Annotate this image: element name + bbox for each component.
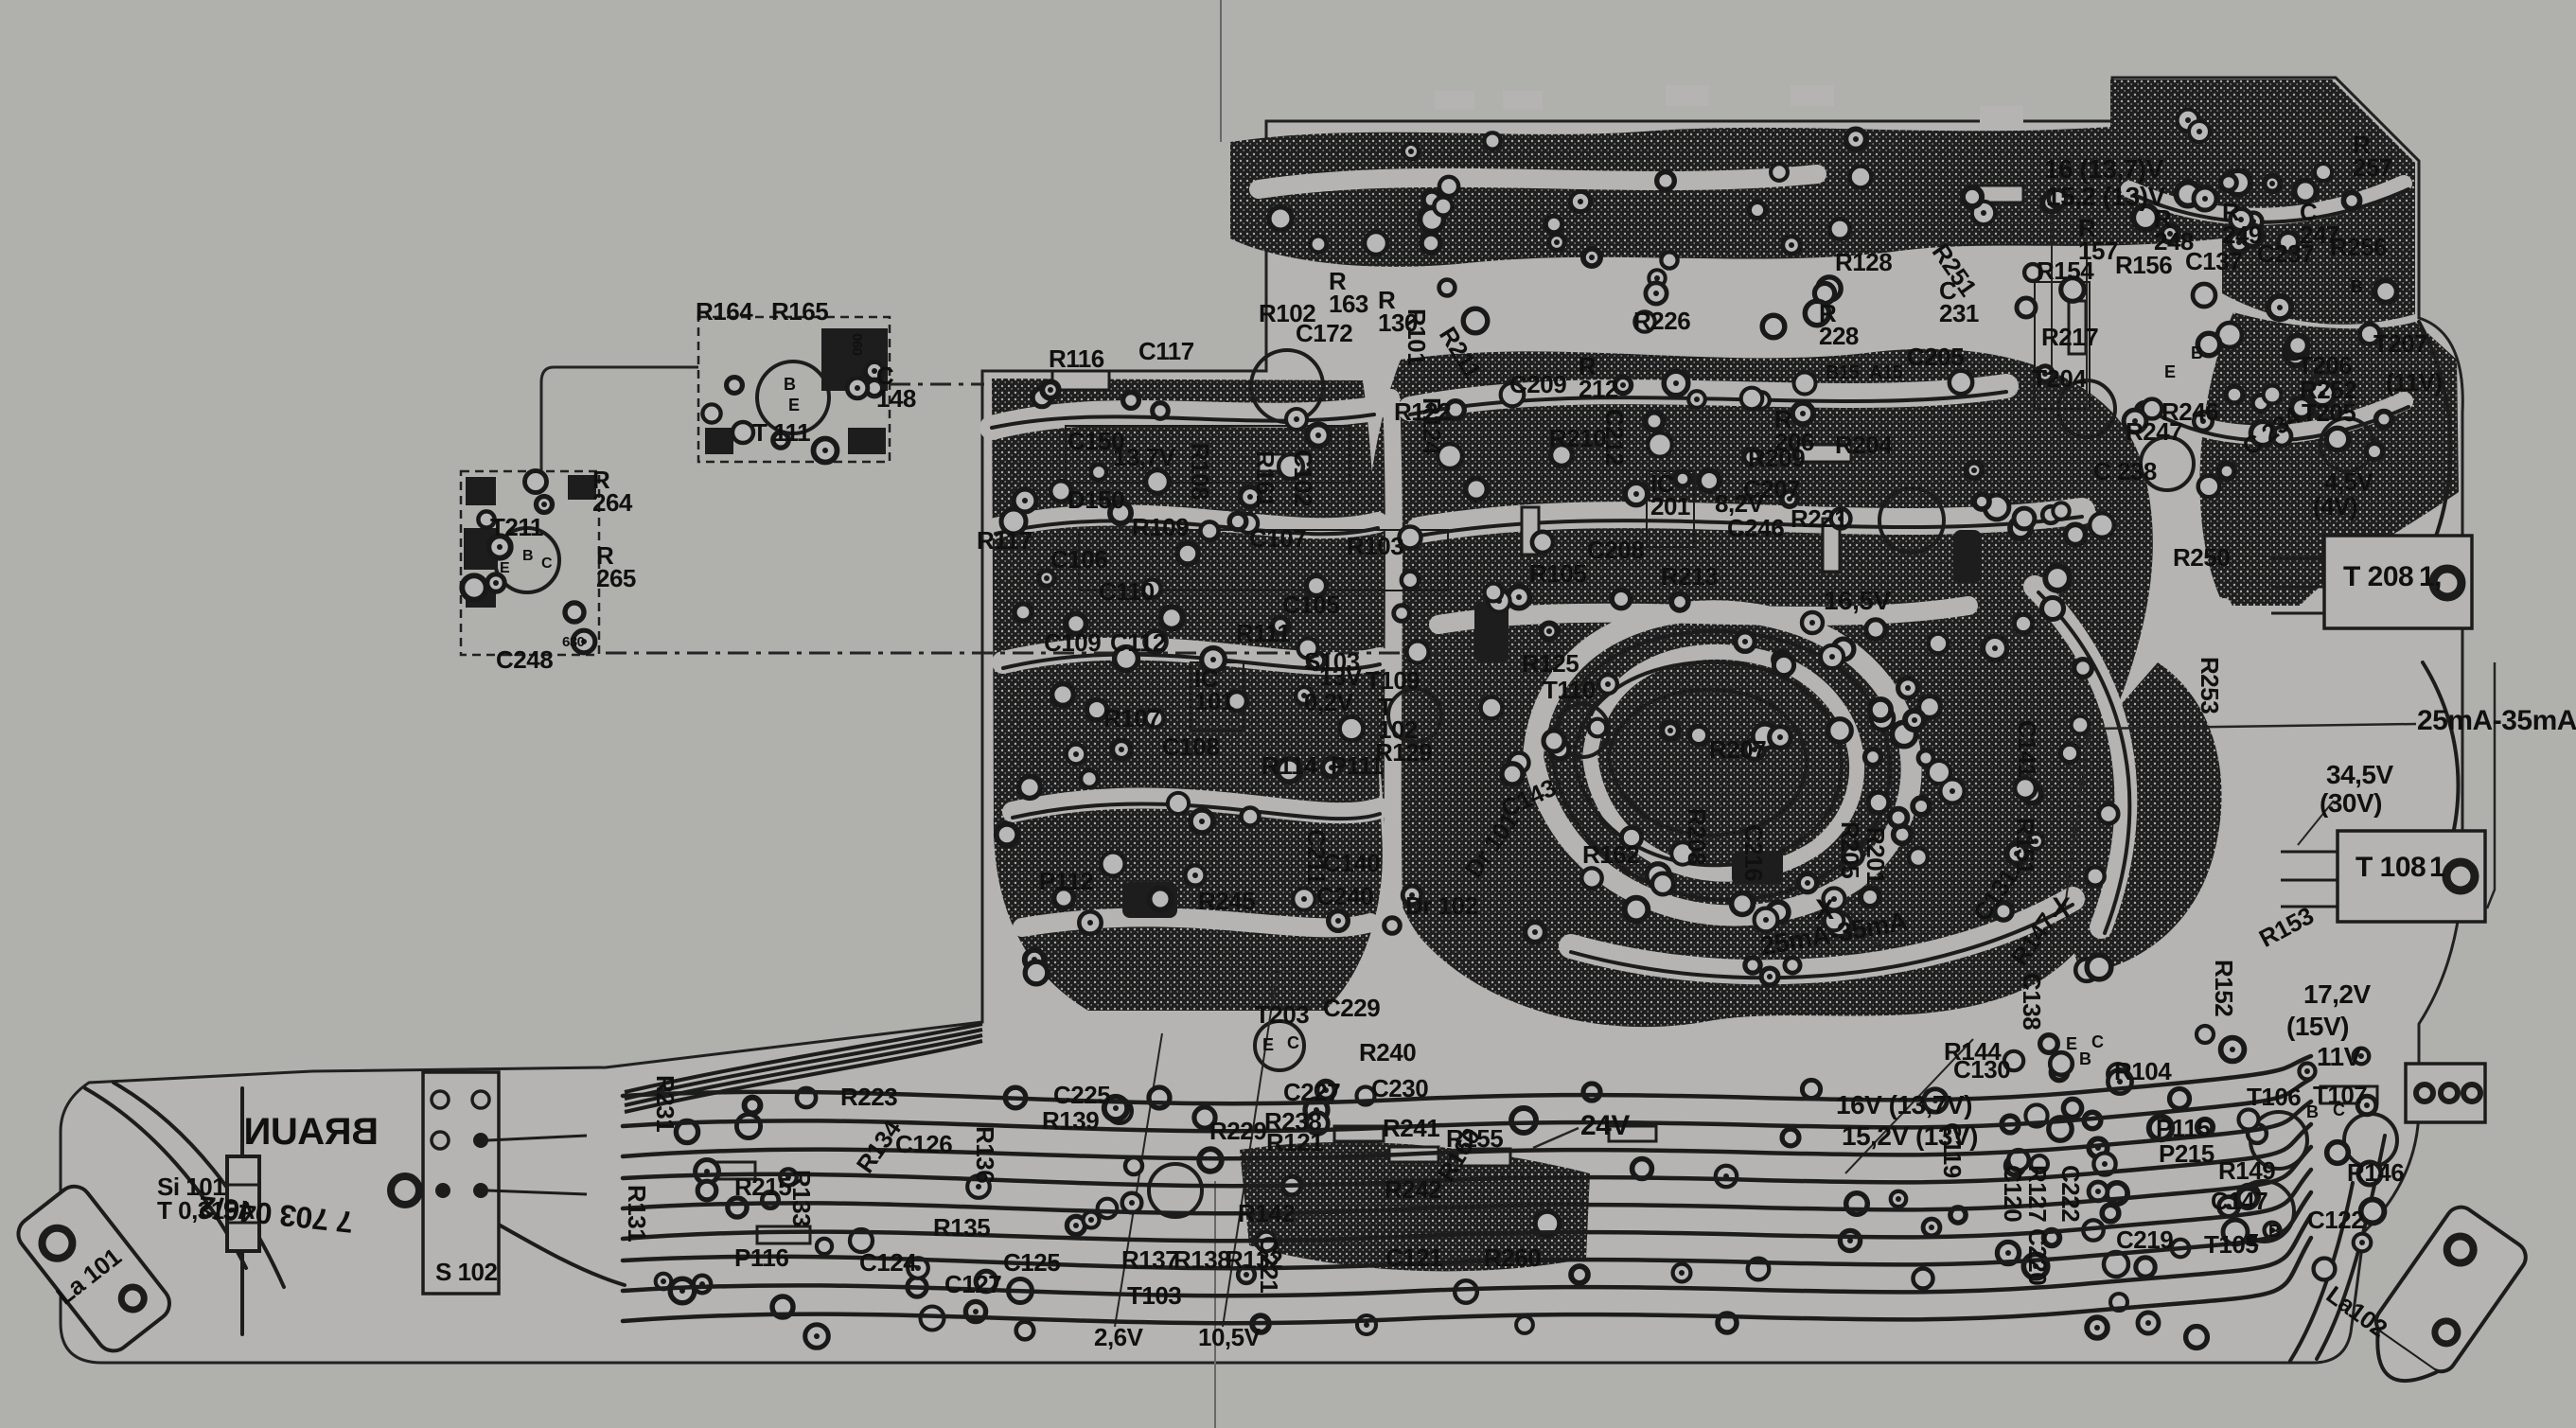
component-label: R165 [771,301,828,324]
component-label: C106 [1050,549,1107,572]
voltage-callout: 4,5V [2324,471,2373,494]
component-label: T110 [1543,679,1596,702]
component-label: R139 [1042,1110,1099,1133]
component-label: C212 [1602,409,1625,466]
component-label: C222 [2058,1165,2081,1222]
component-label: R 228 [1819,303,1859,348]
component-label: C172 [1296,323,1352,345]
component-label: R 249 [2222,202,2262,247]
voltage-callout: 24V [1580,1113,1630,1139]
component-label: T207 [2373,333,2427,356]
component-label: T203 [1255,1004,1309,1027]
component-label: C120 [2001,1165,2023,1222]
component-label: R241 [1383,1118,1439,1140]
component-label: R101 [1404,309,1427,365]
pin-label: E [788,397,800,414]
pin-label: C [2091,1034,2104,1050]
component-label: P116 [734,1247,788,1270]
component-label: C225 [1053,1084,1110,1107]
voltage-callout: 13,7V [1113,447,1174,469]
brand-logo-mirrored: BRAUN [244,1115,379,1150]
voltage-callout: (11V) [2386,372,2443,395]
component-label: R124 [1420,397,1442,454]
component-label: C219 [2116,1229,2173,1252]
component-label: P112 [1039,871,1093,893]
component-label: C112 [1110,632,1166,655]
component-label: C119 [1940,1122,1963,1178]
component-label: R156 [2115,255,2172,277]
component-label: R205 [1838,821,1861,878]
component-label: R116 [1049,348,1104,371]
component-label: P215 [2159,1143,2214,1166]
voltage-callout: 17,2V [2303,982,2371,1007]
component-label: R103 [1347,536,1403,558]
voltage-callout: 16,5V [1824,589,1891,613]
component-label: R105 [1529,563,1586,586]
component-label: R146 [2347,1162,2404,1185]
component-label: R149 [2218,1160,2275,1183]
pin-label: E [2248,1233,2259,1249]
component-label: R133 [789,1170,812,1226]
pin-label: B [2268,1224,2281,1240]
component-label: T109 [1366,670,1420,693]
component-label: R253 [2197,657,2220,714]
component-label: R152 [2212,960,2234,1016]
component-label: C246 [1727,518,1784,540]
voltage-callout: 11V [2317,1045,2361,1069]
component-label: R117 [977,530,1032,553]
component-label: C248 [496,649,553,672]
component-label: R151 [2013,818,2036,874]
component-label: R131 [625,1185,647,1242]
component-label: R209 [1748,448,1805,470]
component-label: C 238 [2093,461,2157,484]
component-label: C109 [1044,632,1101,655]
component-label: R114 [1262,755,1317,778]
voltage-callout: (15V) [2286,1014,2349,1039]
component-label: R111 [1236,623,1290,645]
component-label: C221 [1257,1236,1279,1293]
component-label: R 248 [2154,208,2194,254]
pin-label: C [1287,1035,1299,1051]
component-label: R125 [1522,653,1579,676]
component-label: C207 [1743,479,1800,502]
component-label: R109 [1132,517,1189,539]
component-label: C127 [944,1274,1001,1296]
component-label: C240 [1316,886,1373,908]
component-label: 630 [562,636,585,649]
component-label: R138 [1173,1249,1230,1272]
component-label: R127 [2025,1165,2048,1222]
component-label: R250 [2173,547,2230,570]
component-label: C102 [1291,450,1314,506]
component-label: C117 [1138,341,1194,363]
component-label: C137 [2185,251,2242,273]
component-label: R213 [1661,566,1718,589]
component-label: T211 [490,517,543,539]
component-label: R210 [1549,428,1606,450]
component-label: C107 [1249,528,1306,551]
measure-point: X [2052,895,2071,922]
component-label: R 265 [596,545,636,591]
pin-label: E [1262,1037,1274,1053]
voltage-callout: 10,5V [1198,1327,1260,1349]
component-label: C138 [2020,973,2042,1030]
component-label: C220 [2025,1228,2048,1285]
component-label: R256 [2330,237,2387,259]
component-label: T103 [1127,1285,1181,1308]
component-label: R242 [1385,1179,1441,1202]
component-label: R 264 [592,469,632,515]
voltage-callout: 34,5V [2326,763,2393,787]
component-label: C121 [1385,1247,1442,1270]
pin-label: B [2351,279,2363,295]
component-label: C122 [2307,1209,2364,1232]
component-label: R154 [2037,260,2093,283]
pin-label: B [522,550,533,564]
voltage-callout: 0,2V [1304,692,1353,714]
pin-label: B [2079,1051,2091,1067]
component-label: R208 [1685,808,1707,865]
component-label: D150 [1067,489,1124,512]
component-label: R137 [1121,1249,1178,1272]
component-label: R207 [1709,739,1766,762]
component-label: R247 [2126,421,2182,444]
component-label: R104 [2114,1061,2171,1084]
component-label: R229 [1209,1120,1266,1143]
component-label: C105 [1282,594,1339,617]
component-label: R107 [1103,708,1160,731]
component-label: 060 [850,333,863,356]
component-label: R245 [1198,890,1255,913]
component-label: R231 [653,1075,676,1132]
component-label: B15 [1826,364,1859,381]
component-label: Dr 102 [1405,895,1478,918]
pin-label: E [500,562,509,576]
component-label: C124 [859,1252,916,1275]
pin-label: B [2191,345,2203,361]
component-label: T206 [2298,355,2352,378]
component-label: R108 [1188,443,1210,500]
component-label: R161 [1253,450,1276,507]
component-label: R201 [1863,827,1886,884]
component-label: C 148 [876,365,916,411]
component-label: C205 [1907,346,1964,369]
component-label: IC 201 [1650,473,1690,519]
component-label: R240 [1359,1042,1416,1065]
test-point-value: 1 [2429,855,2444,881]
voltage-callout: 16 (13,7)V [2044,157,2163,182]
test-point-value: 1, [2419,564,2442,591]
voltage-callout: (30V) [2320,791,2382,816]
voltage-callout: 2,6V [1094,1327,1143,1349]
pin-label: C [2333,1102,2345,1119]
component-label: T 102 [1378,696,1418,742]
component-label: C126 [895,1134,952,1156]
component-label: R221 [1791,508,1847,531]
component-label: C230 [1371,1078,1428,1101]
component-label: C147 [2211,1190,2267,1213]
component-label: R217 [2041,326,2098,349]
component-label: C209 [1509,374,1566,397]
voltage-callout: 15,2 (13)V [2046,185,2165,209]
component-label: C130 [1953,1059,2010,1082]
component-label: R128 [1835,252,1892,274]
component-label: IC 101 [1194,668,1234,714]
component-label: R223 [840,1086,897,1109]
component-label: R121 [1266,1132,1323,1155]
component-label: C237 [2257,243,2314,266]
voltage-callout: (4V) [2313,496,2357,519]
component-label: C141 [2015,720,2038,777]
component-label: C140 [1323,853,1380,875]
component-label: C227 [1283,1082,1340,1104]
component-label: R260 [1484,1247,1541,1270]
component-label: T106 [2247,1086,2301,1109]
pin-label: B [2306,1104,2319,1120]
component-label: R129 [1375,742,1432,765]
voltage-callout: 16V (13,7V) [1836,1093,1972,1118]
pin-label: C [541,557,552,572]
component-label: R135 [933,1217,990,1240]
component-label: C110 [1099,581,1155,604]
pin-label: B [784,377,796,393]
component-label: P111 [1331,755,1384,778]
test-point-label: T 108 [2355,855,2426,881]
component-label: T204 [2032,368,2086,391]
measure-point: X [1815,897,1834,924]
component-label: R164 [696,301,752,324]
component-label: P115 [2156,1118,2210,1140]
component-label: C125 [1003,1252,1060,1275]
component-label: R 257 [2353,134,2392,180]
component-label: C208 [1587,539,1644,562]
component-label: R226 [1633,310,1690,333]
switch-label: S 102 [435,1261,497,1284]
component-label: R204 [1835,434,1892,457]
component-label: A15 [1869,364,1902,381]
component-label: C229 [1323,997,1380,1020]
component-label: C216 [1741,824,1764,881]
current-callout: 25mA-35mA [2417,708,2576,734]
component-label: R142 [1238,1203,1295,1225]
voltage-callout: 13V [1319,666,1362,689]
component-label: R215 [734,1176,791,1199]
pcb-layout-scan: R164R165C 148T 111BE060T211R 264R 265C24… [0,0,2576,1428]
pin-label: E [2164,364,2176,380]
component-label: R136 [973,1126,996,1183]
component-label: R162 [1582,844,1639,867]
component-label: R 212 [1579,356,1618,401]
component-label: R 163 [1329,271,1368,316]
pin-label: E [2066,1036,2077,1052]
component-label: C108 [1162,736,1219,759]
component-label: T205 [2302,402,2355,425]
component-label: T 111 [752,422,810,445]
test-point-label: T 208 [2343,564,2413,591]
